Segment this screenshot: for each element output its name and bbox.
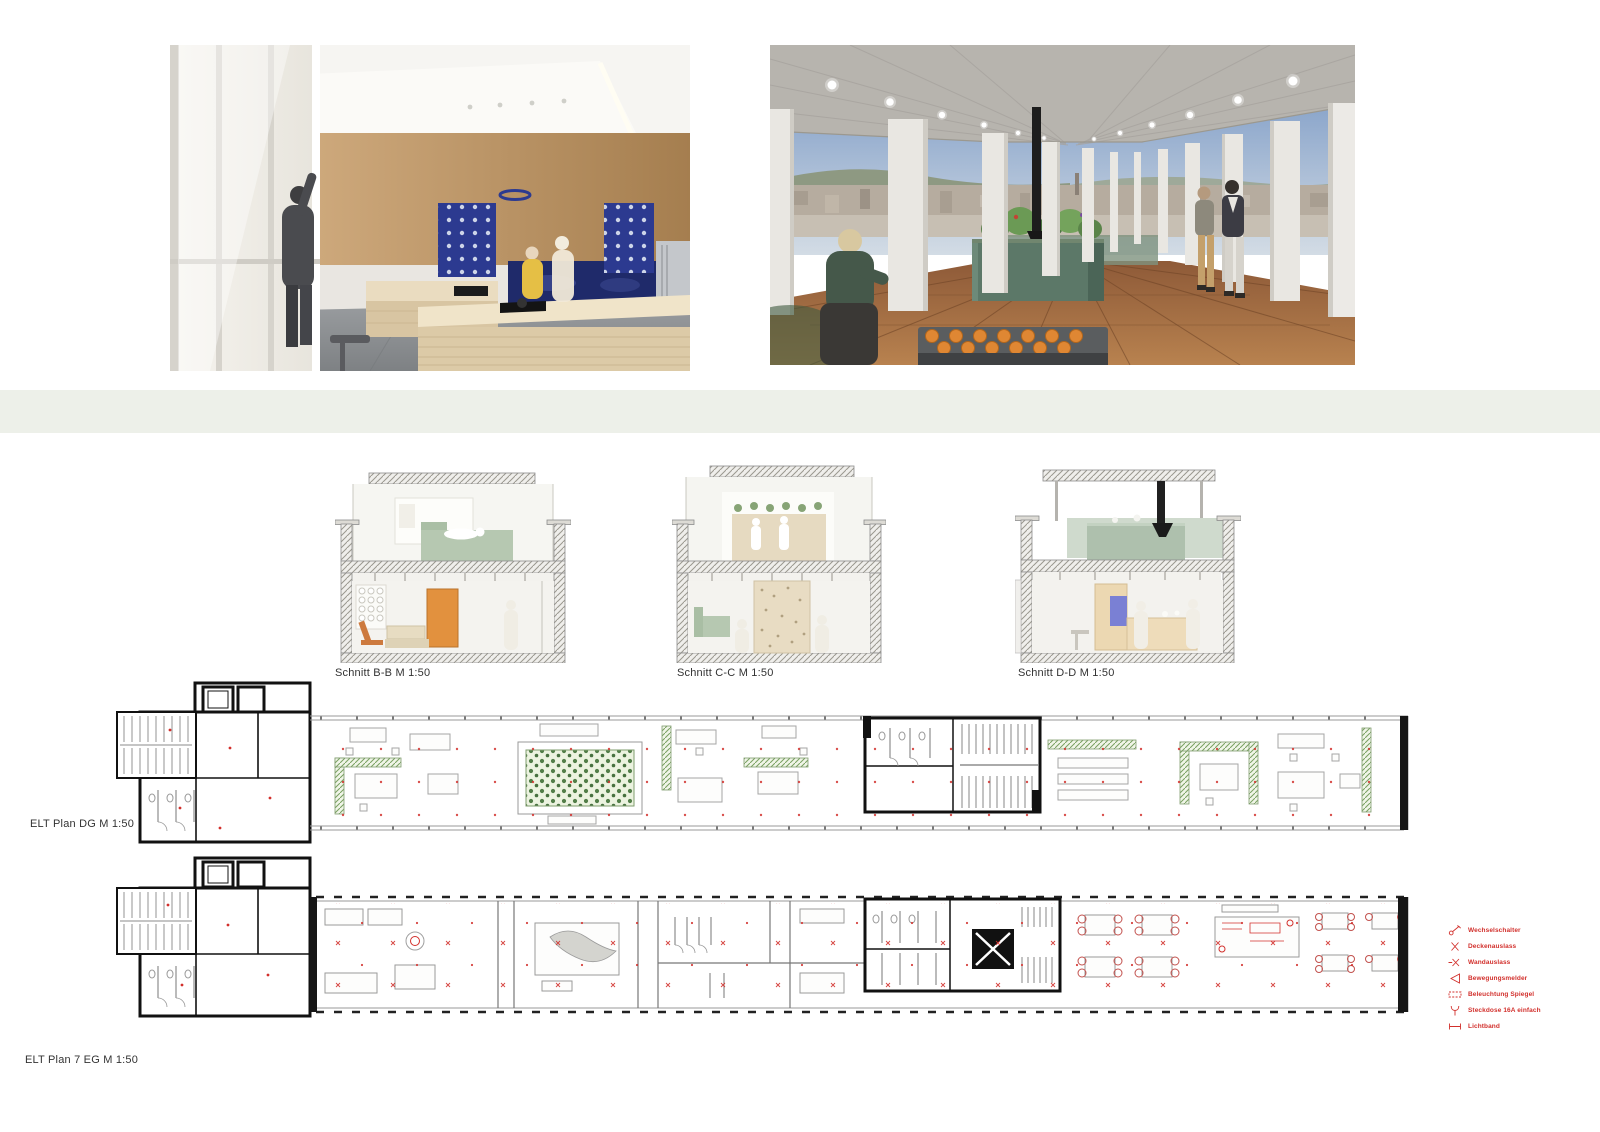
legend-item-label: Beleuchtung Spiegel [1468,991,1534,998]
background-band [0,390,1600,433]
light-strip-icon [1448,1021,1462,1032]
motion-detector-icon [1448,973,1462,984]
rooftop-render-image [770,45,1355,365]
legend-item-label: Bewegungsmelder [1468,975,1527,982]
floor-plan-eg [110,853,1415,1023]
wall-outlet-icon [1448,957,1462,968]
rooftop-table [918,327,1108,365]
section-drawing-dd [1015,458,1241,663]
column [770,109,794,315]
plan-eg-elt-grid [320,903,1390,1003]
plan-eg-label: ELT Plan 7 EG M 1:50 [25,1054,138,1066]
section-dd-roof [1043,470,1215,521]
column [982,133,1008,293]
legend-item: Beleuchtung Spiegel [1448,986,1598,1002]
column [1158,149,1168,253]
plan-eg-end-wall [1398,897,1408,1012]
floor-plan-dg [110,678,1415,848]
electrical-legend: Wechselschalter Deckenauslass Wandauslas… [1448,922,1598,1034]
section-dd-lower-room [1032,580,1223,653]
plan-dg-left-core [117,683,310,842]
two-way-switch-icon [1448,925,1462,936]
legend-item: Steckdose 16A einfach [1448,1002,1598,1018]
socket-icon [1448,1005,1462,1016]
plan-dg-elt-grid [315,722,1400,824]
ceiling-outlet-icon [1448,941,1462,952]
legend-item: Bewegungsmelder [1448,970,1598,986]
column [1082,148,1094,262]
section-dd-upper-level [1067,481,1233,560]
legend-item: Wechselschalter [1448,922,1598,938]
plan-dg-label: ELT Plan DG M 1:50 [30,818,134,830]
mirror-light-icon [1448,989,1462,1000]
section-bb-upper-level [353,484,553,561]
legend-item: Wandauslass [1448,954,1598,970]
interior-render-image [170,45,690,371]
presentation-board: Schnitt B-B M 1:50 Schnitt C-C M 1:50 Sc… [0,0,1600,1132]
legend-item: Lichtband [1448,1018,1598,1034]
legend-item-label: Wandauslass [1468,959,1510,966]
section-drawing-bb [335,458,571,663]
column [888,119,928,311]
section-drawing-cc [672,458,886,663]
section-bb-lower-room [352,581,554,653]
legend-item: Deckenauslass [1448,938,1598,954]
section-cc-upper-level [686,477,872,561]
column [1110,152,1118,252]
column [1134,152,1141,244]
legend-item-label: Deckenauslass [1468,943,1516,950]
plan-eg-strip [310,897,1408,1012]
column [1042,142,1060,276]
legend-item-label: Steckdose 16A einfach [1468,1007,1541,1014]
plan-eg-left-core [117,858,310,1016]
column [1270,121,1300,301]
legend-item-label: Lichtband [1468,1023,1500,1030]
column [1328,103,1355,317]
plan-dg-end-wall [1400,716,1408,830]
legend-item-label: Wechselschalter [1468,927,1521,934]
section-cc-lower-room [688,581,870,653]
plan-dg-strip [310,716,1408,830]
